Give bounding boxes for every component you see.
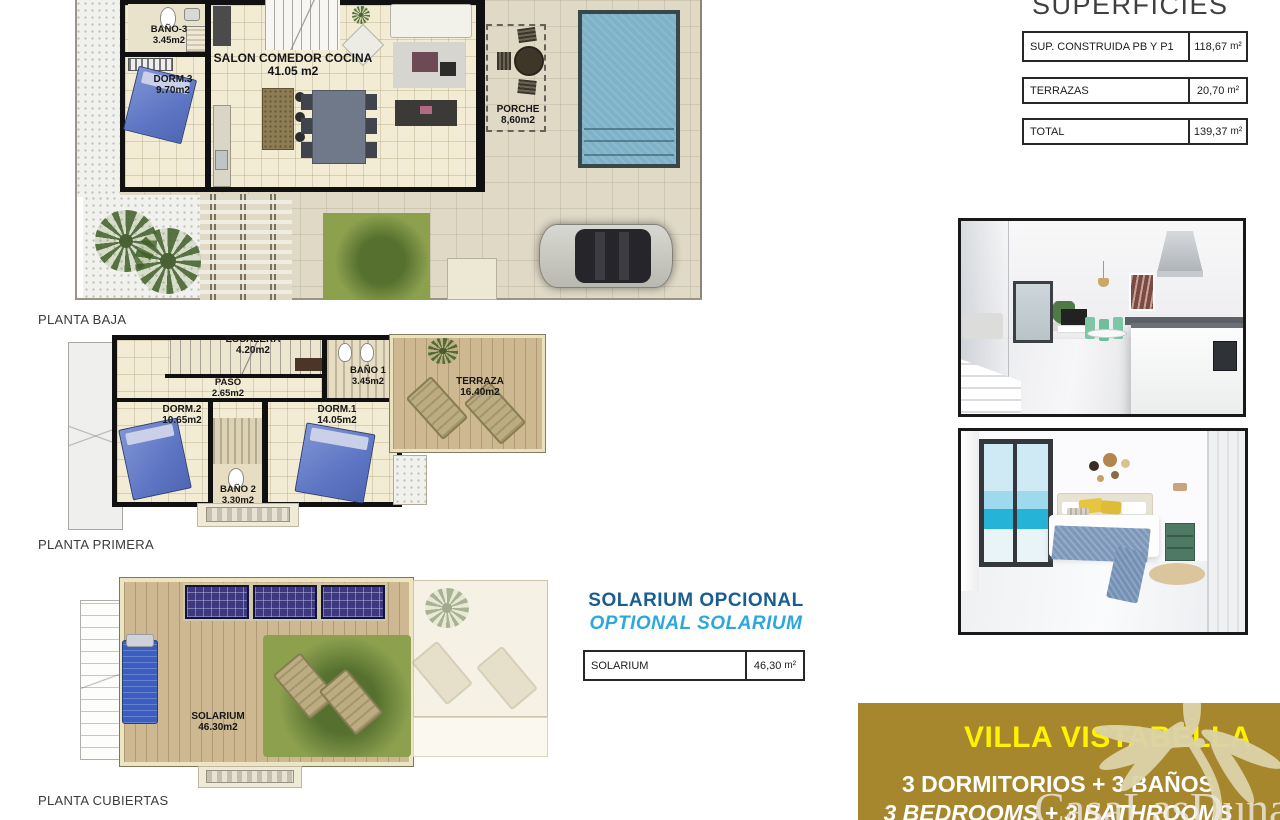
value: 20,70 [1197,85,1225,97]
driveway-stripes [200,194,292,300]
value: 139,37 [1194,126,1228,138]
room-area: 8,60m2 [490,115,546,126]
caption-planta-cubiertas: PLANTA CUBIERTAS [38,793,169,808]
room-area: 46.30m2 [182,722,254,733]
solarium-option-title-es: SOLARIUM OPCIONAL [580,590,812,612]
photo-kitchen-living [958,218,1246,417]
room-name: DORM.2 [150,404,214,415]
kitchen-counter [213,105,231,187]
wall-plate-decor [1097,475,1104,482]
superficies-row: TOTAL 139,37 m² [1022,118,1248,145]
room-area: 2.65m2 [198,389,258,400]
toilet-icon [338,343,352,362]
superficies-row-value: 118,67 m² [1188,33,1246,60]
gravel-strip [75,0,120,197]
unit: m² [784,660,796,671]
palm-artwork [1129,273,1155,311]
car-roof [575,229,651,283]
solar-panel-icon [253,585,317,619]
pendant-cord [1103,261,1104,279]
solarium-table-row: SOLARIUM 46,30 m² [583,650,805,681]
doormat [206,507,290,522]
room-label-dorm1: DORM.1 14.05m2 [305,404,369,426]
palm-tree-icon [135,228,201,294]
superficies-row: TERRAZAS 20,70 m² [1022,77,1248,104]
room-label-paso: PASO 2.65m2 [198,378,258,399]
jute-rug [1149,563,1205,585]
room-label-dorm2: DORM.2 10.65m2 [150,404,214,426]
chair-icon [366,142,377,158]
solarium-table-label: SOLARIUM [585,652,745,679]
lounger-pillow [126,634,154,647]
bed-dorm1 [294,422,375,503]
superficies-row-label: SUP. CONSTRUIDA PB Y P1 [1024,33,1188,60]
room-name: SALON COMEDOR COCINA [213,52,373,65]
unit: m² [1227,85,1239,96]
entry-pad [447,258,497,300]
wall-plate-decor [1103,453,1117,467]
brochure-page: BAÑO-3 3.45m2 DORM.3 9.70m2 SALON COMEDO… [0,0,1280,820]
room-label-solarium: SOLARIUM 46.30m2 [182,711,254,733]
pool [578,10,680,168]
dining-table-icon [312,90,366,164]
pool-lane-line [584,154,674,156]
room-name: TERRAZA [445,376,515,387]
side-table-icon [440,62,456,76]
lower-roof-ghost2 [413,717,548,757]
terraza-plant-icon [428,338,458,364]
porche-chair-icon [497,52,511,70]
porche-chair-icon [517,27,537,43]
kitchen-island [262,88,294,150]
superficies-row-label: TOTAL [1024,120,1188,143]
wall-house-right [476,0,484,192]
value: 46,30 [754,660,782,672]
stairs-ground [265,0,340,50]
car-sunroof [595,232,605,280]
porche-table-icon [514,46,544,76]
curtain [961,431,979,591]
room-name: DORM.3 [138,74,208,85]
unit: m² [1230,41,1242,52]
island-top-edge [1131,323,1243,328]
solar-panel-icon [321,585,385,619]
room-name: ESCALERA [215,334,291,345]
sink2-icon [215,150,228,170]
chair-icon [301,118,312,134]
room-area: 3.45m2 [340,377,396,388]
room-area: 41.05 m2 [213,65,373,78]
indoor-plant-icon [352,6,370,24]
plot-boundary-left [75,0,77,300]
room-name: PORCHE [490,104,546,115]
pool-lane-line [584,140,674,142]
grass-patch [323,213,430,300]
solar-panel-icon [185,585,249,619]
bathroom2-stripes [213,418,262,464]
room-label-bano1: BAÑO 1 3.45m2 [340,366,396,387]
nightstand-drawer-line [1167,535,1193,537]
oven [1213,341,1237,371]
pendant-lamp [1098,278,1109,287]
floor-plan-planta-baja: BAÑO-3 3.45m2 DORM.3 9.70m2 SALON COMEDO… [0,0,730,305]
wall-plate-decor [1089,461,1099,471]
plot-boundary-right [700,0,702,298]
pillow-white [1121,501,1147,515]
sofa-icon [390,4,472,38]
room-label-terraza: TERRAZA 16.40m2 [445,376,515,398]
wall-plate-decor [1111,471,1119,479]
room-label-dorm3: DORM.3 9.70m2 [138,74,208,96]
room-area: 3.45m2 [133,36,205,47]
doormat [206,770,294,783]
pool-lane-line [584,128,674,130]
solarium-option-title-en: OPTIONAL SOLARIUM [580,613,812,635]
sink-icon [184,8,200,21]
caption-planta-primera: PLANTA PRIMERA [38,537,154,552]
superficies-row-label: TERRAZAS [1024,79,1188,102]
wardrobe [1207,431,1245,632]
coffee-table-icon [412,52,438,72]
decor-accent [420,106,432,114]
room-area: 4.20m2 [215,345,291,356]
floor-plan-planta-primera: ESCALERA 4.20m2 PASO 2.65m2 BAÑO 1 3.45m… [0,328,600,538]
dining-table [1087,329,1127,338]
bidet-icon [360,343,374,362]
ghost-tree-icon [425,588,469,628]
chair-icon [366,118,377,134]
pillow-yellow [1101,500,1122,514]
car-sunroof [619,232,629,280]
unit: m² [1230,126,1242,137]
caption-planta-baja: PLANTA BAJA [38,312,126,327]
chair-icon [301,94,312,110]
watermark: CasaLasDunas [1034,782,1280,820]
superficies-row: SUP. CONSTRUIDA PB Y P1 118,67 m² [1022,31,1248,62]
room-area: 14.05m2 [305,415,369,426]
room-label-salon: SALON COMEDOR COCINA 41.05 m2 [213,52,373,79]
blue-lounger-icon [122,640,158,724]
chair-icon [301,142,312,158]
superficies-title: SUPERFICIES [1032,0,1229,21]
wall-under-bath3 [125,52,210,57]
porche-chair-icon [517,79,536,95]
hood-chrome [1157,271,1203,277]
wall-sconce [1173,483,1187,491]
room-area: 3.30m2 [210,496,266,507]
chair-icon [366,94,377,110]
tv [1061,309,1087,325]
value: 118,67 [1194,41,1227,53]
patio-door [1013,281,1053,343]
sofa [963,313,1003,339]
nightstand [1165,523,1195,561]
room-area: 16.40m2 [445,387,515,398]
superficies-row-value: 20,70 m² [1188,79,1246,102]
gravel-square [393,455,427,505]
window-mullion [1013,441,1017,565]
room-label-porche: PORCHE 8,60m2 [490,104,546,126]
room-name: DORM.1 [305,404,369,415]
nightstand-drawer-line [1167,547,1193,549]
superficies-row-value: 139,37 m² [1188,120,1246,143]
room-area: 9.70m2 [138,85,208,96]
wall-plate-decor [1121,459,1130,468]
solarium-table-value: 46,30 m² [745,652,803,679]
room-area: 10.65m2 [150,415,214,426]
room-label-bano3: BAÑO-3 3.45m2 [133,25,205,46]
room-label-bano2: BAÑO 2 3.30m2 [210,485,266,506]
fridge-icon [213,6,231,46]
room-name: SOLARIUM [182,711,254,722]
floor-plan-planta-cubiertas: SOLARIUM 46.30m2 [0,570,600,795]
car [533,218,679,294]
photo-bedroom [958,428,1248,635]
room-label-escalera: ESCALERA 4.20m2 [215,334,291,356]
